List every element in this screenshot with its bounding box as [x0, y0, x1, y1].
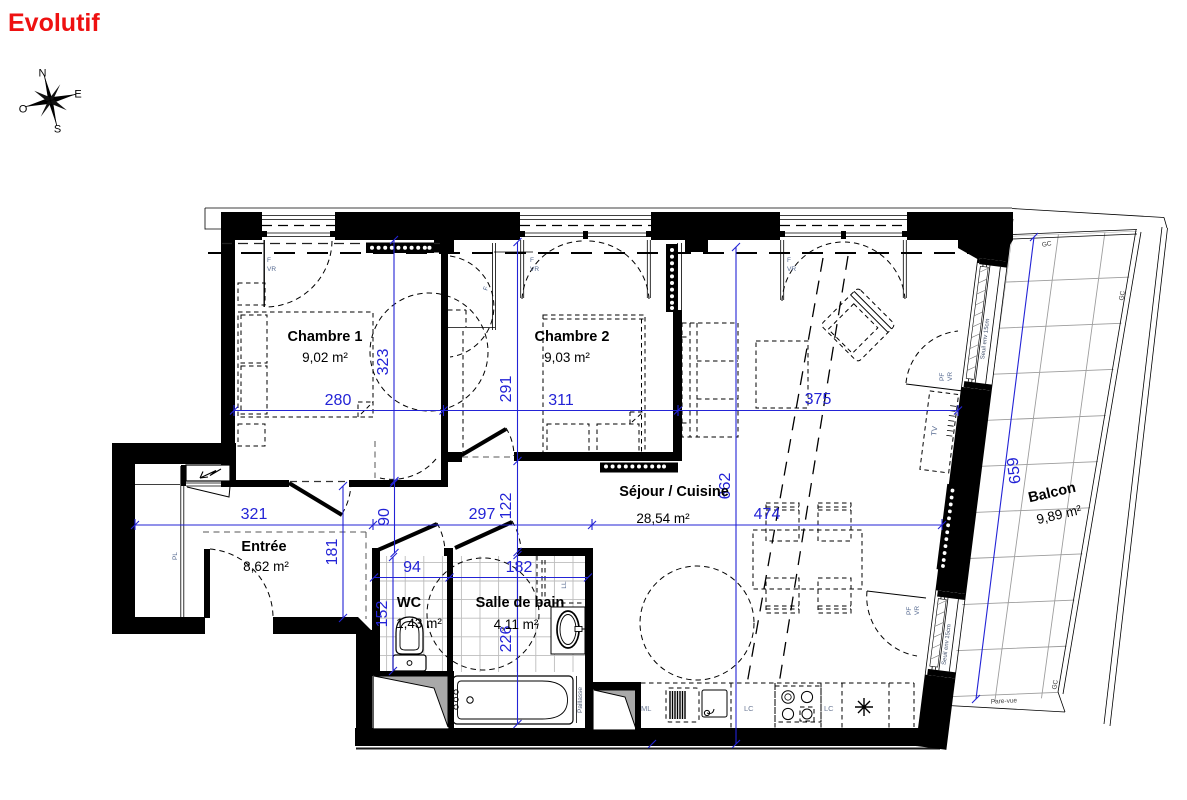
svg-text:122: 122	[498, 493, 515, 520]
svg-text:VR: VR	[947, 372, 954, 381]
svg-text:S: S	[54, 124, 61, 136]
svg-text:311: 311	[548, 392, 574, 409]
svg-text:152: 152	[374, 601, 391, 628]
svg-text:PF: PF	[906, 607, 913, 615]
svg-text:PF: PF	[939, 373, 946, 381]
svg-text:474: 474	[754, 506, 781, 523]
svg-text:659: 659	[1004, 456, 1024, 485]
svg-text:Séjour / Cuisine: Séjour / Cuisine	[619, 484, 729, 500]
svg-text:VR: VR	[530, 266, 539, 273]
svg-text:90: 90	[376, 508, 393, 526]
svg-text:182: 182	[506, 559, 533, 576]
svg-text:280: 280	[325, 392, 352, 409]
svg-text:297: 297	[469, 506, 496, 523]
svg-text:N: N	[39, 68, 47, 80]
svg-text:Paillasse: Paillasse	[577, 687, 584, 713]
svg-text:VR: VR	[267, 266, 276, 273]
svg-text:Entrée: Entrée	[241, 539, 286, 555]
svg-text:28,54 m²: 28,54 m²	[636, 511, 690, 526]
svg-text:F: F	[267, 257, 271, 264]
svg-text:Chambre 2: Chambre 2	[535, 329, 610, 345]
svg-text:94: 94	[403, 559, 421, 576]
svg-text:9,03 m²: 9,03 m²	[544, 350, 590, 365]
svg-text:323: 323	[375, 349, 392, 376]
svg-text:Pare-vue: Pare-vue	[991, 697, 1018, 705]
svg-text:WC: WC	[397, 595, 422, 611]
svg-text:F: F	[530, 257, 534, 264]
svg-text:181: 181	[324, 539, 341, 566]
svg-text:TV: TV	[929, 426, 939, 437]
svg-text:375: 375	[805, 391, 832, 408]
svg-text:LC: LC	[744, 704, 754, 713]
svg-text:4,11 m²: 4,11 m²	[494, 617, 539, 632]
svg-text:VR: VR	[914, 606, 921, 615]
svg-text:LL: LL	[561, 581, 568, 589]
svg-text:E: E	[74, 89, 81, 101]
svg-text:1,43 m²: 1,43 m²	[396, 616, 442, 631]
svg-text:9,02 m²: 9,02 m²	[302, 350, 348, 365]
svg-text:291: 291	[498, 376, 515, 403]
svg-text:F: F	[787, 257, 791, 264]
svg-text:Evolutif: Evolutif	[8, 9, 100, 37]
svg-text:321: 321	[241, 506, 268, 523]
svg-text:O: O	[19, 104, 28, 116]
svg-text:Chambre 1: Chambre 1	[288, 329, 363, 345]
svg-text:8,62 m²: 8,62 m²	[243, 559, 289, 574]
svg-text:LC: LC	[824, 704, 834, 713]
svg-text:PL: PL	[172, 552, 179, 560]
svg-text:VR: VR	[787, 266, 796, 273]
svg-text:Salle de bain: Salle de bain	[476, 595, 565, 611]
svg-text:ML: ML	[641, 704, 651, 713]
